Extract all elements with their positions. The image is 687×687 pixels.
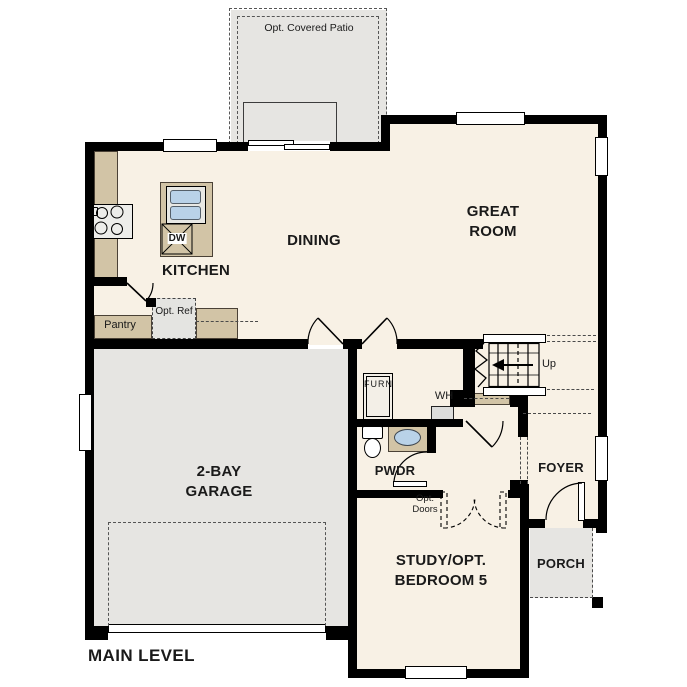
burner-icon bbox=[95, 222, 107, 234]
garage-entry-door-leaf bbox=[318, 318, 343, 344]
great-room-label: GREAT ROOM bbox=[467, 202, 519, 242]
plan-title: MAIN LEVEL bbox=[88, 646, 195, 666]
closet-door-arc bbox=[492, 421, 503, 447]
porch-label: PORCH bbox=[537, 556, 585, 571]
hall-door-leaf bbox=[362, 318, 387, 344]
burner-icon bbox=[112, 224, 123, 235]
study-label: STUDY/OPT. BEDROOM 5 bbox=[395, 551, 488, 591]
garage-label: 2-BAY GARAGE bbox=[185, 462, 252, 502]
optional-door-arc-left bbox=[444, 497, 475, 528]
stairs-up-label: Up bbox=[542, 358, 556, 370]
powder-room-label: PWDR bbox=[375, 463, 416, 478]
plan-linework bbox=[0, 0, 687, 687]
pantry-label: Pantry bbox=[104, 319, 136, 331]
water-heater-label: WH bbox=[435, 390, 453, 402]
dining-label: DINING bbox=[287, 231, 341, 251]
front-door-arc bbox=[546, 483, 582, 520]
hall-door-arc bbox=[387, 318, 397, 344]
garage-entry-door-arc bbox=[308, 318, 318, 344]
burner-icon bbox=[111, 206, 123, 218]
kitchen-label: KITCHEN bbox=[162, 261, 230, 281]
optional-door-jamb-left bbox=[441, 492, 447, 528]
optional-doors-label: Opt. Doors bbox=[412, 493, 437, 515]
burner-icon bbox=[97, 208, 108, 219]
dishwasher-label: DW bbox=[168, 233, 187, 244]
pantry-door-leaf bbox=[127, 283, 146, 301]
stair-break-line bbox=[475, 343, 487, 387]
optional-door-jamb-right bbox=[500, 492, 506, 528]
pantry-door-arc bbox=[146, 283, 153, 301]
patio-label: Opt. Covered Patio bbox=[264, 22, 353, 34]
foyer-label: FOYER bbox=[538, 460, 584, 475]
floor-plan: Opt. Ref FURN bbox=[0, 0, 687, 687]
closet-door-leaf bbox=[466, 421, 492, 447]
